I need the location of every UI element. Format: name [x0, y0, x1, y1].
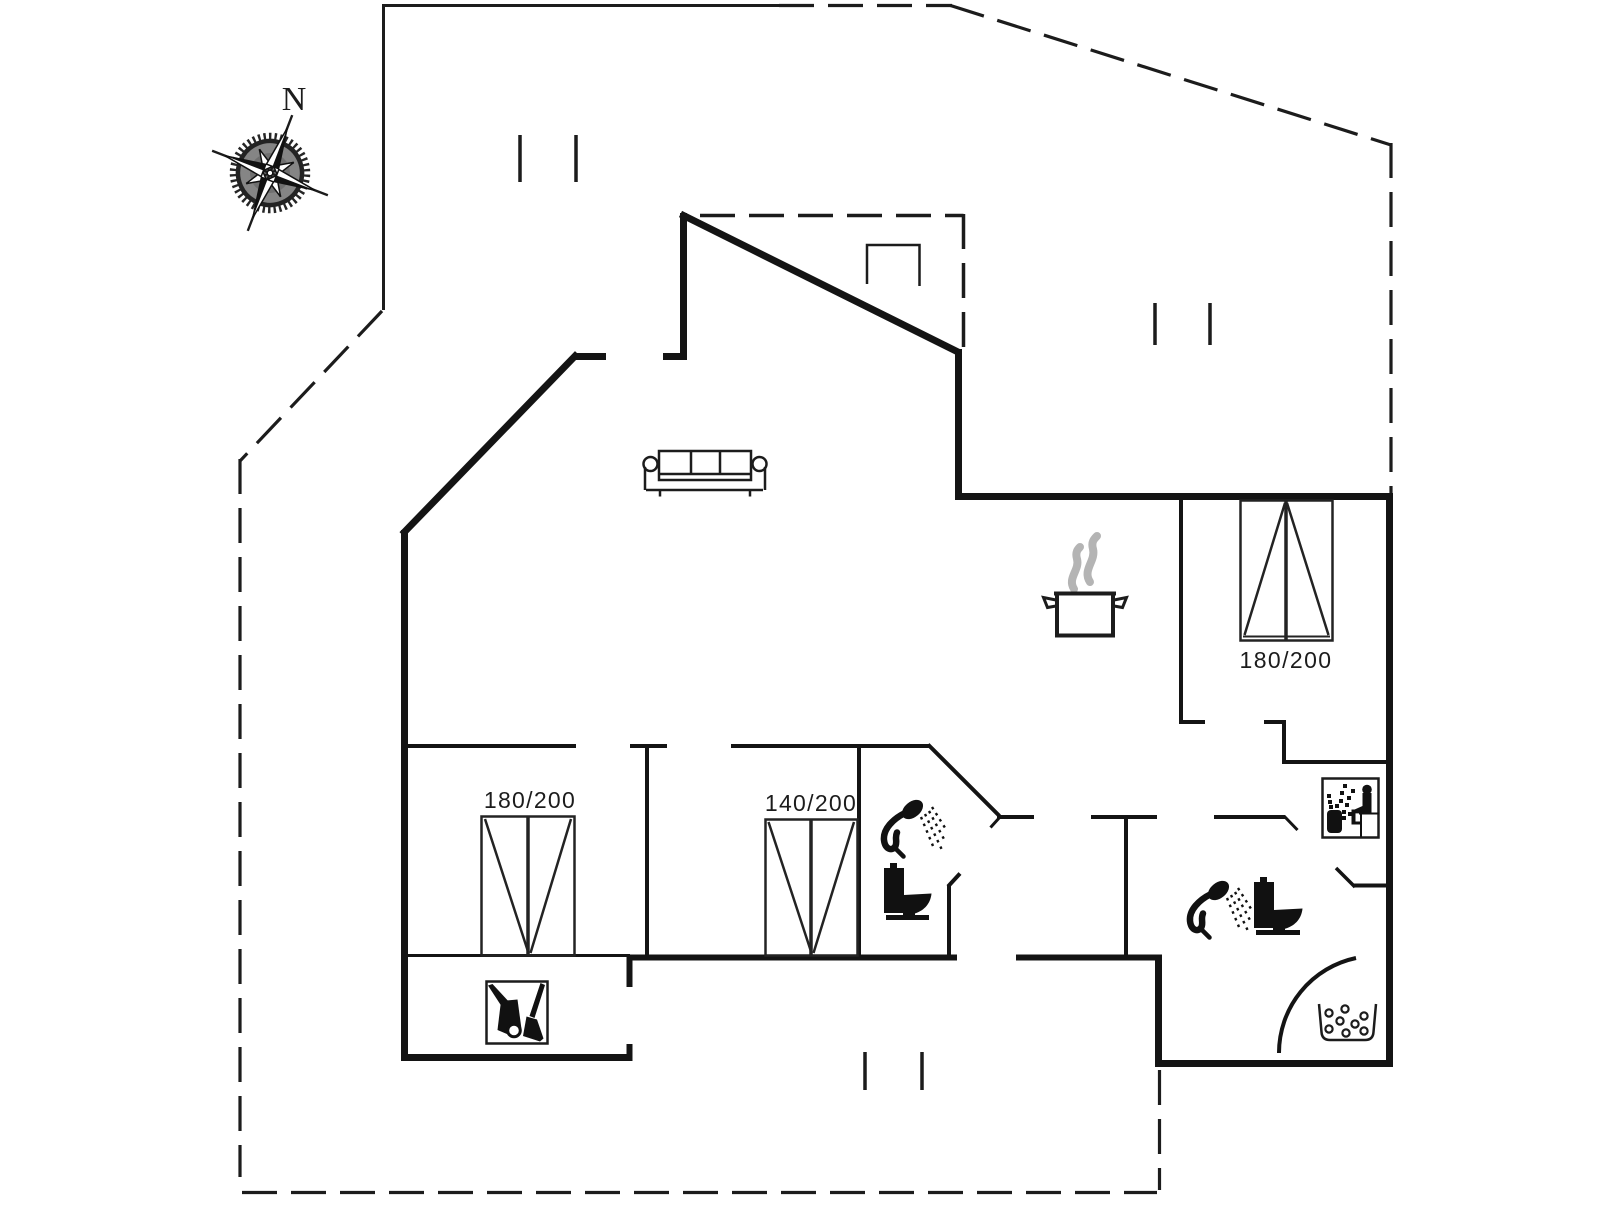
svg-text:N: N: [282, 81, 307, 118]
svg-text:140/200: 140/200: [765, 790, 857, 816]
svg-text:180/200: 180/200: [1240, 647, 1333, 673]
svg-text:180/200: 180/200: [484, 787, 576, 813]
